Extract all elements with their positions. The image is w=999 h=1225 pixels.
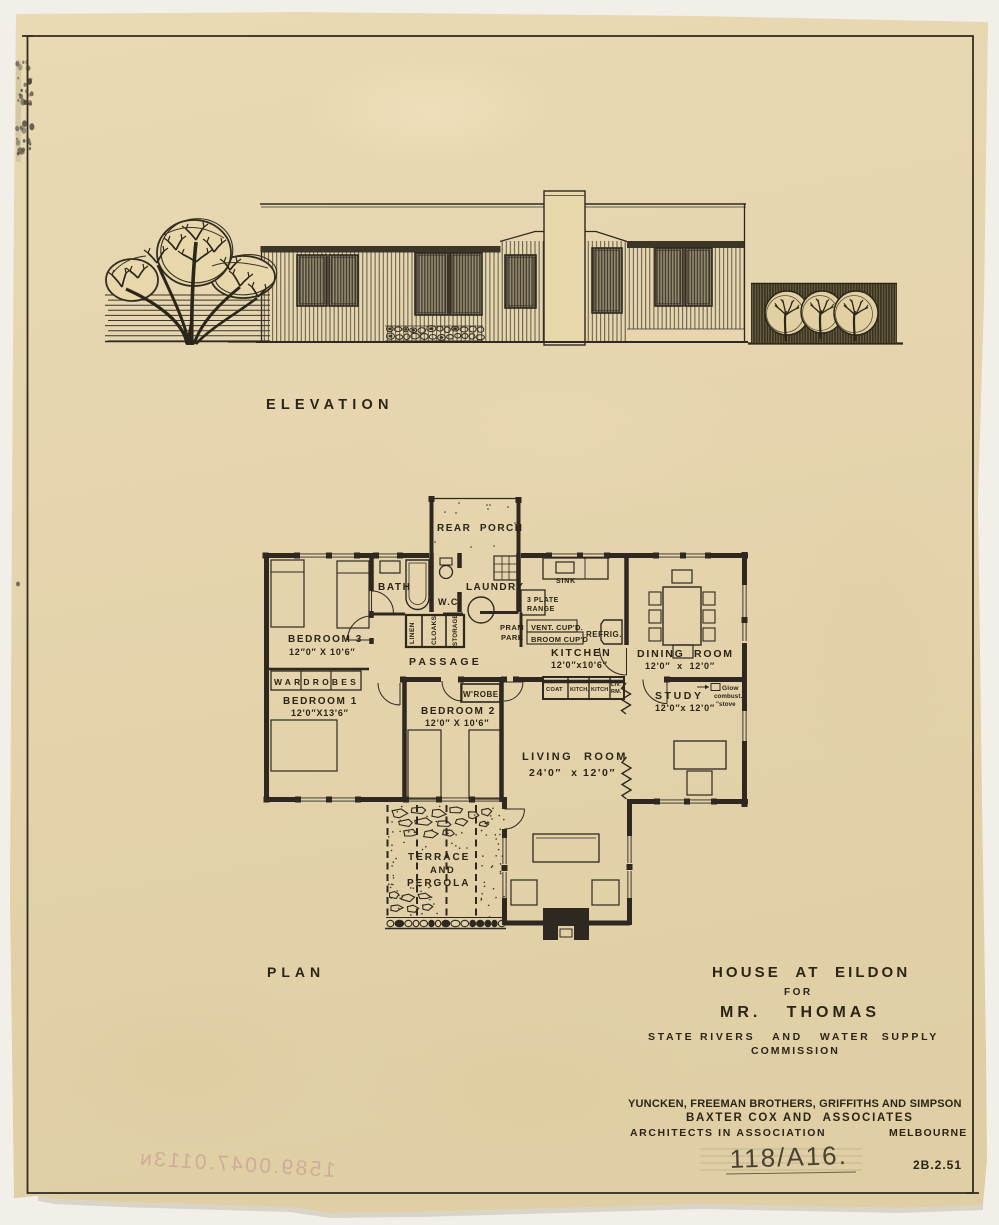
svg-text:12'0″ x 12'0″: 12'0″ x 12'0″ (645, 661, 715, 671)
svg-text:AND: AND (430, 865, 455, 876)
svg-text:ELEVATION: ELEVATION (266, 397, 394, 413)
svg-text:CLOAKS: CLOAKS (431, 615, 438, 645)
svg-text:HOUSE AT EILDON: HOUSE AT EILDON (712, 964, 910, 981)
svg-text:STATE RIVERS AND WATER SU: STATE RIVERS AND WATER SUPPLY (648, 1031, 939, 1043)
svg-text:12″0″ X 10'6″: 12″0″ X 10'6″ (289, 647, 356, 657)
svg-text:KITCH.: KITCH. (570, 687, 589, 693)
svg-text:combust.: combust. (714, 693, 742, 700)
svg-text:12'0″ X 10'6″: 12'0″ X 10'6″ (425, 718, 489, 728)
svg-text:PARK: PARK (501, 633, 524, 642)
svg-text:BEDROOM 2: BEDROOM 2 (421, 706, 496, 717)
svg-text:12'0″x 12'0″: 12'0″x 12'0″ (655, 703, 715, 713)
svg-text:PASSAGE: PASSAGE (409, 656, 482, 668)
svg-text:WARDROBES: WARDROBES (274, 677, 359, 687)
svg-text:"stove: "stove (716, 701, 736, 708)
svg-text:VENT. CUP'D.: VENT. CUP'D. (531, 623, 583, 632)
svg-text:LAUNDRY: LAUNDRY (466, 582, 524, 593)
svg-text:24'0″ x 12'0″: 24'0″ x 12'0″ (529, 767, 616, 779)
svg-text:DINING ROOM: DINING ROOM (637, 648, 734, 660)
svg-text:BAXTER COX AND ASSOCIATES: BAXTER COX AND ASSOCIATES (686, 1112, 914, 1124)
svg-text:YUNCKEN, FREEMAN BROTHERS, GRI: YUNCKEN, FREEMAN BROTHERS, GRIFFITHS AND… (628, 1098, 962, 1110)
svg-text:12'0″x10'6″: 12'0″x10'6″ (551, 660, 608, 670)
svg-text:W.C.: W.C. (438, 597, 462, 607)
svg-text:COMMISSION: COMMISSION (751, 1045, 840, 1057)
svg-text:BATH: BATH (378, 582, 411, 593)
svg-text:PERGOLA: PERGOLA (407, 878, 470, 889)
svg-text:3 PLATE: 3 PLATE (527, 597, 559, 604)
svg-text:KITCH: KITCH (591, 687, 608, 693)
svg-text:Glow: Glow (722, 685, 739, 692)
svg-text:MR. THOMAS: MR. THOMAS (720, 1004, 880, 1021)
svg-text:RANGE: RANGE (527, 606, 555, 613)
svg-text:BEDROOM 1: BEDROOM 1 (283, 696, 358, 707)
svg-text:ARCHITECTS IN ASSOCIATION: ARCHITECTS IN ASSOCIATION (630, 1127, 826, 1139)
svg-text:STORAGE: STORAGE (452, 614, 459, 646)
svg-text:W'ROBE: W'ROBE (463, 690, 499, 699)
svg-text:REAR PORCH: REAR PORCH (437, 523, 524, 534)
svg-text:PRAM: PRAM (500, 623, 524, 632)
svg-text:KITCHEN: KITCHEN (551, 647, 612, 659)
svg-text:TERRACE: TERRACE (408, 852, 470, 863)
svg-text:LIVING ROOM: LIVING ROOM (522, 751, 628, 763)
svg-text:REFRIG.: REFRIG. (586, 630, 622, 639)
svg-text:BROOM CUP'D: BROOM CUP'D (531, 635, 588, 644)
svg-text:COAT: COAT (546, 687, 563, 693)
svg-text:2B.2.51: 2B.2.51 (913, 1158, 962, 1172)
svg-text:BEDROOM 3: BEDROOM 3 (288, 634, 363, 645)
svg-text:RM.: RM. (611, 689, 622, 695)
svg-text:LINEN: LINEN (409, 622, 416, 644)
svg-text:LIV.: LIV. (611, 682, 621, 688)
svg-text:12'0″X13'6″: 12'0″X13'6″ (291, 708, 349, 718)
svg-text:FOR: FOR (784, 987, 813, 998)
svg-text:118/A16.: 118/A16. (729, 1140, 848, 1174)
svg-text:MELBOURNE: MELBOURNE (889, 1127, 967, 1139)
svg-text:PLAN: PLAN (267, 964, 325, 980)
svg-text:SINK: SINK (556, 578, 576, 585)
svg-text:STUDY: STUDY (655, 690, 704, 702)
